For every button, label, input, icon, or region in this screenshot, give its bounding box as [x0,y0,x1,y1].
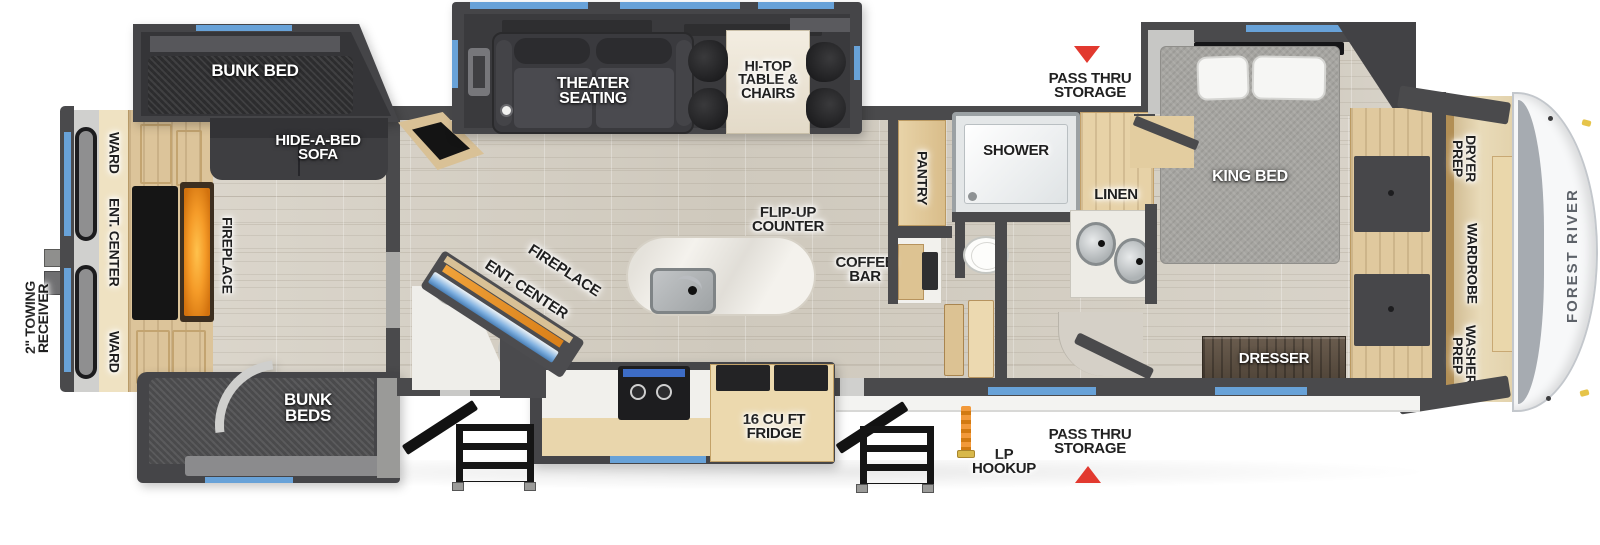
fridge-label: 16 CU FT FRIDGE [726,406,822,448]
stairs-main-foot-2 [922,484,934,493]
theater-window-right [854,46,860,80]
rear-fireplace-glow [184,188,210,316]
king-pillow-2 [1252,55,1327,100]
pass-thru-top-label: PASS THRU STORAGE [1030,66,1150,106]
sink-faucet-base [688,286,697,295]
rear-window-top [64,132,71,236]
hitop-chair-3 [806,42,846,82]
cupholder-left [500,104,513,117]
hall-wall [995,218,1007,378]
cap-screw-top [1548,116,1553,121]
bunk-slide-window [196,25,292,31]
pantry-label: PANTRY [907,142,937,214]
rear-cabinet-door-1 [140,124,172,184]
ward-top-label: WARD [99,122,129,184]
rear-window-frame-bottom [75,265,97,379]
brand-label: FOREST RIVER [1558,156,1588,356]
stairs-main-foot-1 [856,484,868,493]
vanity-sink-1 [1076,222,1116,266]
cabinet-knob-2 [1388,306,1394,312]
towing-receiver-label: 2" TOWING RECEIVER [14,252,60,384]
marker-light-top [1581,119,1591,127]
rear-tv [132,186,178,320]
headrest-1 [514,38,590,64]
cabinet-knob-1 [1388,190,1394,196]
fireplace-rear-label: FIREPLACE [213,204,241,306]
theater-window-1 [470,2,588,9]
bunk-beds-label: BUNK BEDS [268,388,348,428]
burner-2 [656,384,672,400]
bunk-slide-headboard [150,36,340,52]
stove-blue-trim [623,369,685,377]
pass-thru-bottom-label: PASS THRU STORAGE [1030,422,1150,462]
pantry-wall-bottom [888,226,952,238]
partition-door-opening [386,252,400,328]
stairs-main-ladder [860,426,934,484]
dresser-label: DRESSER [1210,348,1338,370]
ent-center-rear-label: ENT. CENTER [99,194,129,290]
linen-label: LINEN [1082,184,1150,206]
theater-window-2 [620,2,740,9]
bath-door-2 [968,300,994,378]
kitchen-window [610,456,706,463]
shower-bottom-wall [952,212,1080,222]
bunkbeds-window [205,477,293,483]
burner-1 [630,384,646,400]
king-pillow-1 [1196,55,1250,101]
hitop-chair-1 [688,40,728,82]
pantry-wall-left [888,118,898,304]
king-bed-label: KING BED [1200,166,1300,188]
hitop-chair-4 [806,88,846,128]
fridge-door-2 [774,365,828,391]
rear-window-bottom [64,268,71,372]
stairs-rear-foot-2 [524,482,536,491]
coffee-maker [922,252,938,290]
entry-stairs-rear [398,392,548,492]
shower-label: SHOWER [980,140,1052,162]
vanity-faucet-1 [1098,240,1105,247]
bottom-window-2 [1215,387,1307,395]
fridge-door-1 [716,365,770,391]
flip-up-counter-label: FLIP-UP COUNTER [738,200,838,240]
hide-a-bed-label: HIDE-A-BED SOFA [252,127,384,169]
hitop-chair-2 [688,88,728,130]
vanity-right-wall [1145,204,1157,304]
rear-window-frame-top [75,127,97,241]
bunk-bed-label: BUNK BED [205,60,305,82]
partition-wall [386,110,400,392]
wardrobe-label: WARDROBE [1456,214,1488,312]
side-shelf-inner [473,56,485,88]
pass-thru-marker-down-icon [1074,46,1100,63]
vanity-faucet-2 [1136,258,1143,265]
marker-light-bottom [1579,389,1589,397]
shower-inner [964,124,1068,204]
cap-screw-bottom [1546,396,1551,401]
stairs-rear-foot-1 [452,482,464,491]
hitop-label: HI-TOP TABLE & CHAIRS [726,50,810,112]
bed-slide-window [1246,25,1350,32]
rear-cabinet-door-2 [176,130,202,186]
bedroom-cabinets [1350,108,1435,394]
rv-floorplan: 2" TOWING RECEIVER WARD ENT. CENTER WARD… [0,0,1600,545]
theater-window-left [452,40,458,88]
headrest-2 [596,38,672,64]
bottom-window-1 [988,387,1096,395]
bath-door-1 [944,304,964,376]
dryer-prep-label: DRYER PREP [1442,124,1486,192]
entry-stairs-main [832,394,972,494]
theater-seating-label: THEATER SEATING [530,70,656,112]
shower-drain [968,192,977,201]
ward-bottom-label: WARD [99,320,129,384]
theater-window-3 [758,2,834,9]
stairs-rear-ladder [456,424,534,482]
